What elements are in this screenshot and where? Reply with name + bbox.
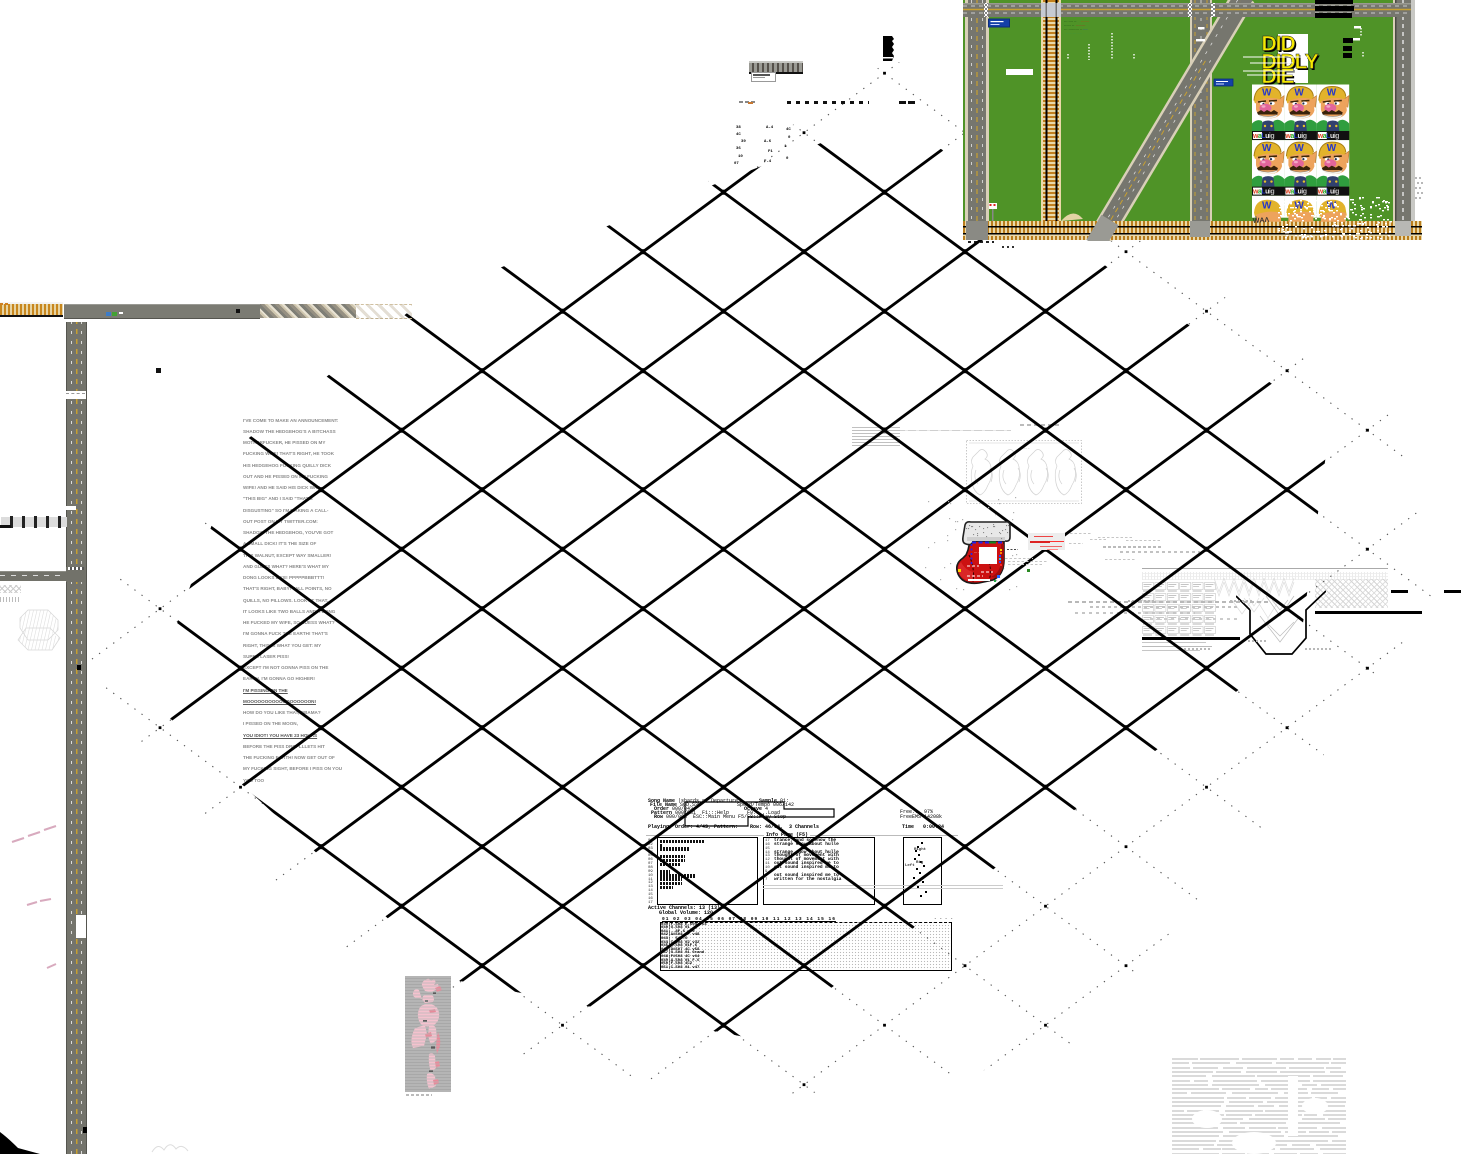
svg-text:waLuig: waLuig [1284,189,1306,196]
svg-text:--- --: --- -- [1285,65,1290,68]
svg-text:W: W [1294,143,1304,154]
svg-text:W: W [1327,143,1337,154]
svg-text:waLuig: waLuig [1317,133,1339,140]
svg-text:W: W [1327,88,1337,99]
svg-text:W: W [1262,201,1272,212]
svg-text:W: W [1262,143,1272,154]
svg-text:W: W [1294,88,1304,99]
svg-text:waLuig: waLuig [1252,189,1274,196]
svg-text:W: W [1262,88,1272,99]
svg-text:waLuig: waLuig [1317,189,1339,196]
svg-text:waLuig: waLuig [1252,133,1274,140]
svg-text:waLuig: waLuig [1284,133,1306,140]
svg-text:--- -- -----: --- -- ----- [974,550,986,554]
svg-text:----- --- ----: ----- --- ---- [1066,31,1083,35]
